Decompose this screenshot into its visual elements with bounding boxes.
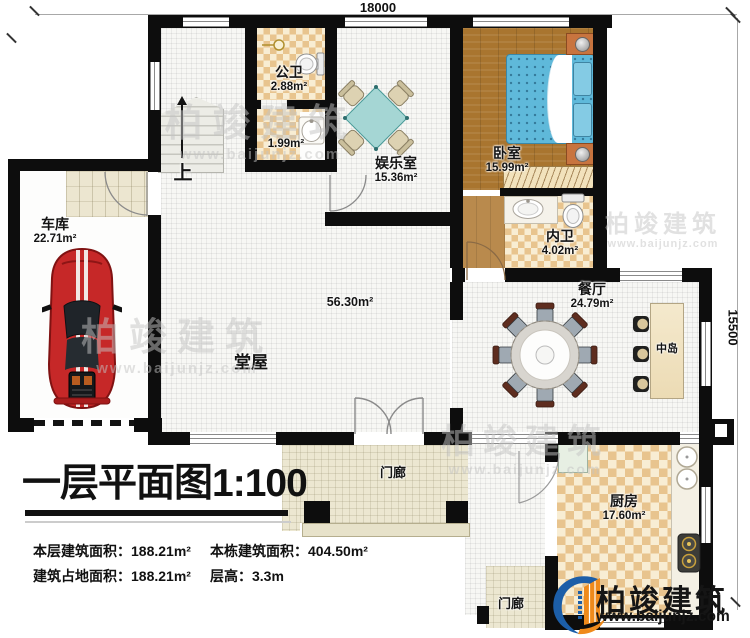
- room-name: 内卫: [546, 228, 574, 244]
- bed: [506, 54, 595, 144]
- stat-building-area: 本栋建筑面积：404.50m²: [210, 541, 368, 561]
- ensuite-label: 内卫 4.02m²: [542, 228, 578, 258]
- floor-plan: 车库 22.71m² 公卫 2.88m² 1.99m² 娱乐室 15.36m² …: [0, 0, 750, 638]
- bar-stool: [633, 346, 649, 362]
- wall: [424, 432, 472, 445]
- wall: [558, 432, 680, 445]
- stat-floor-area: 本层建筑面积：188.21m²: [33, 541, 191, 561]
- dining-label: 餐厅 24.79m²: [571, 281, 614, 311]
- garage-wall: [8, 418, 34, 432]
- title-scale: 1:100: [212, 462, 307, 505]
- title-underline: [25, 510, 288, 516]
- bar-stool: [633, 376, 649, 392]
- wall: [245, 28, 257, 168]
- dining-table-set: [491, 301, 599, 409]
- stove: [676, 532, 702, 574]
- room-name: 卧室: [493, 145, 521, 161]
- wall: [325, 212, 452, 226]
- island-label: 中岛: [656, 343, 678, 356]
- bar-stool: [633, 316, 649, 332]
- porch-pillar: [304, 501, 330, 523]
- room-name: 门廊: [380, 465, 406, 480]
- garage-label: 车库 22.71m²: [34, 216, 77, 246]
- wall: [593, 15, 607, 282]
- dimension-tick: [6, 33, 17, 44]
- nightstand: [566, 33, 596, 55]
- garage-interior-door: [98, 169, 150, 219]
- bed-sheet: [547, 55, 572, 143]
- room-area: 15.99m²: [486, 162, 529, 176]
- room-area: 17.60m²: [603, 510, 646, 524]
- room-name: 厨房: [610, 493, 638, 509]
- wall: [450, 282, 463, 320]
- hall-area-label: 56.30m²: [327, 295, 374, 310]
- game-table-set: [330, 72, 422, 164]
- wall-light-icon: [260, 38, 286, 52]
- room-area: 4.02m²: [542, 245, 578, 259]
- stair-arrow-head: [177, 96, 187, 105]
- front-porch-label: 门廊: [380, 465, 406, 480]
- stat-footprint-area: 建筑占地面积：188.21m²: [33, 566, 191, 586]
- room-area: 24.79m²: [571, 298, 614, 312]
- window: [701, 322, 711, 386]
- garage-door-dashed: [34, 420, 134, 426]
- room-name: 公卫: [275, 64, 303, 80]
- stat-storey-height: 层高：3.3m: [210, 566, 284, 586]
- wall: [276, 432, 354, 445]
- lamp-icon: [575, 37, 590, 52]
- room-area: 2.88m²: [271, 81, 307, 95]
- room-area: 22.71m²: [34, 233, 77, 247]
- porch-steps: [302, 523, 470, 537]
- room-area: 15.36m²: [375, 172, 418, 186]
- title-underline-thin: [25, 521, 291, 523]
- stair-direction-arrow: [181, 104, 183, 158]
- sports-car: [42, 246, 122, 412]
- entertainment-label: 娱乐室 15.36m²: [375, 155, 418, 185]
- hall-label: 堂屋: [234, 353, 268, 373]
- fridge: [558, 444, 588, 473]
- pillow: [573, 103, 592, 137]
- room-name: 餐厅: [578, 281, 606, 297]
- brand-website: www.baijunjz.com: [596, 608, 730, 626]
- room-name: 门廊: [498, 596, 524, 611]
- stairs-up-label: 上: [173, 163, 192, 185]
- wall: [287, 100, 325, 109]
- title-main: 一层平面图: [22, 462, 212, 505]
- window: [701, 487, 711, 543]
- garage-wall: [134, 418, 162, 432]
- ensuite-basin: [508, 197, 548, 221]
- ensuite-toilet: [558, 192, 588, 232]
- window: [183, 17, 229, 27]
- entry-double-door: [352, 394, 426, 436]
- public-bath-label: 公卫 2.88m²: [271, 64, 307, 94]
- kitchen-door: [516, 448, 562, 506]
- wall: [450, 15, 463, 268]
- entertainment-door: [327, 172, 367, 214]
- lamp-icon: [575, 147, 590, 162]
- washroom-label: 1.99m²: [268, 138, 304, 152]
- room-area: 1.99m²: [268, 138, 304, 152]
- watermark: 柏竣建筑 www.baijunjz.com: [593, 212, 733, 250]
- bedroom-label: 卧室 15.99m²: [486, 145, 529, 175]
- window: [150, 62, 160, 110]
- window: [620, 271, 682, 281]
- wall: [255, 100, 261, 109]
- vestibule-door: [464, 236, 508, 284]
- room-area: 56.30m²: [327, 295, 374, 309]
- dimension-width: 18000: [352, 0, 404, 15]
- porch-pillar: [446, 501, 468, 523]
- room-name: 堂屋: [234, 353, 268, 372]
- room-name: 娱乐室: [375, 155, 417, 171]
- dimension-height: 15500: [726, 303, 741, 353]
- wall: [148, 215, 161, 445]
- kitchen-sink: [674, 445, 700, 491]
- kitchen-label: 厨房 17.60m²: [603, 493, 646, 523]
- wall: [148, 432, 190, 445]
- garage-wall: [8, 159, 20, 432]
- dimension-tick: [730, 597, 741, 608]
- pillow: [573, 62, 592, 96]
- window: [190, 434, 276, 444]
- page-title: 一层平面图1:100: [22, 452, 307, 508]
- window: [680, 434, 699, 444]
- nightstand: [566, 143, 596, 165]
- window: [473, 17, 569, 27]
- window: [472, 434, 558, 444]
- window: [345, 17, 427, 27]
- wall-corner-notch: [715, 424, 727, 437]
- wall: [245, 160, 337, 172]
- side-porch-label: 门廊: [498, 596, 524, 611]
- wall: [477, 606, 489, 624]
- wall: [450, 408, 463, 432]
- wall: [505, 268, 620, 282]
- wall: [325, 28, 337, 172]
- room-name: 车库: [41, 216, 69, 232]
- room-name: 中岛: [656, 343, 678, 355]
